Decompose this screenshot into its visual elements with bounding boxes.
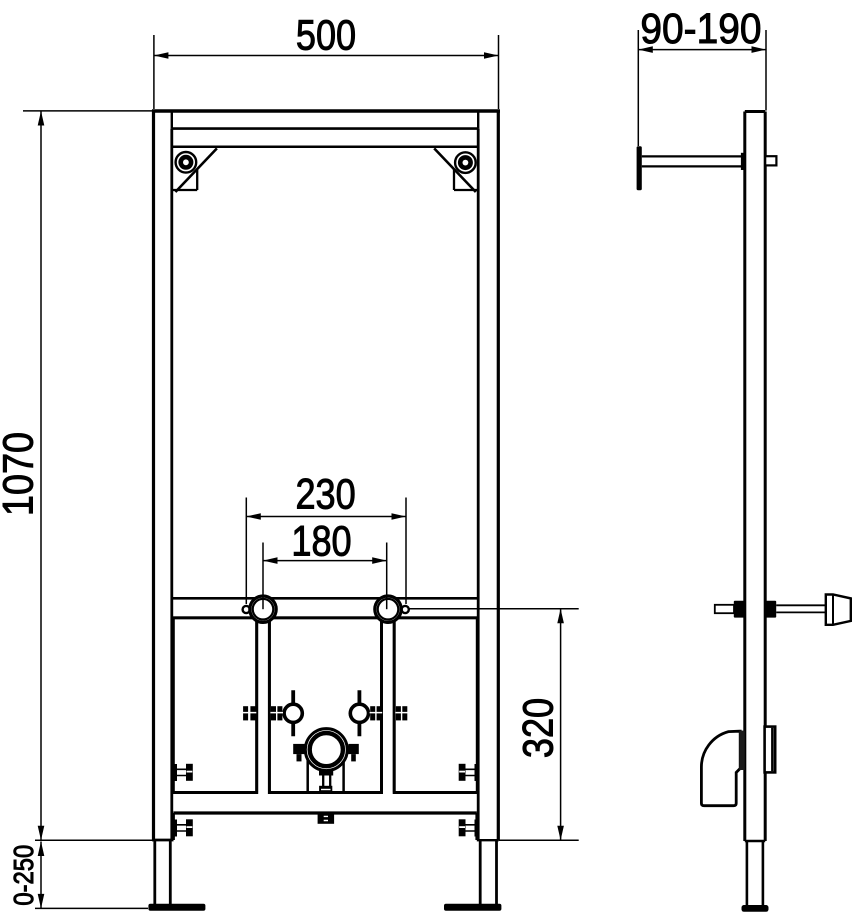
svg-text:320: 320: [514, 698, 562, 758]
svg-text:500: 500: [296, 11, 356, 59]
svg-text:1070: 1070: [0, 432, 42, 516]
svg-text:180: 180: [291, 517, 351, 565]
svg-text:90-190: 90-190: [640, 4, 761, 52]
svg-text:230: 230: [295, 471, 355, 519]
svg-text:0-250: 0-250: [7, 845, 39, 906]
